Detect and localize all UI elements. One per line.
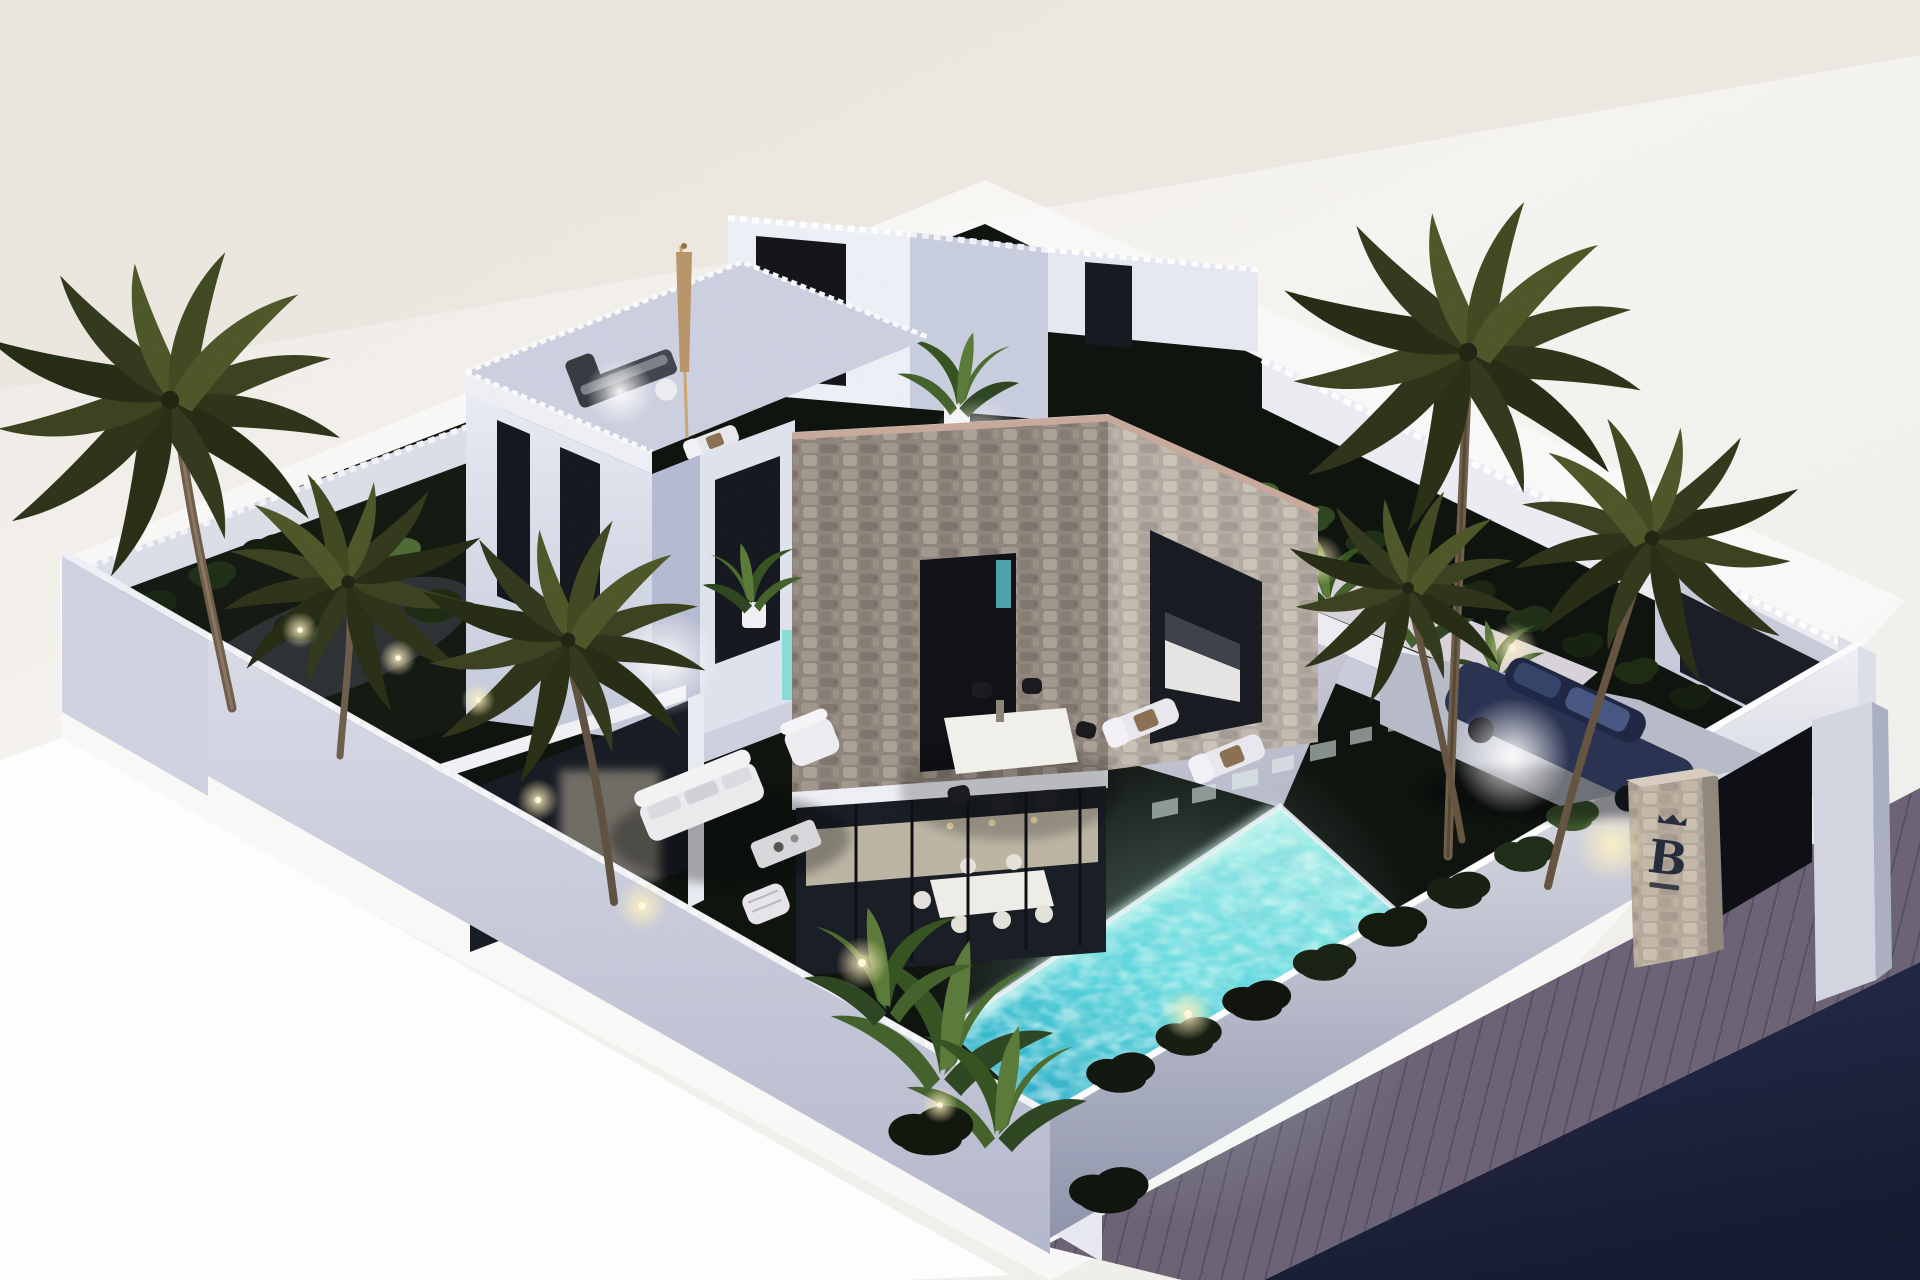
render-canvas: B [0, 0, 1920, 1280]
film-grain [0, 0, 1920, 1280]
villa-render: B [0, 0, 1920, 1280]
